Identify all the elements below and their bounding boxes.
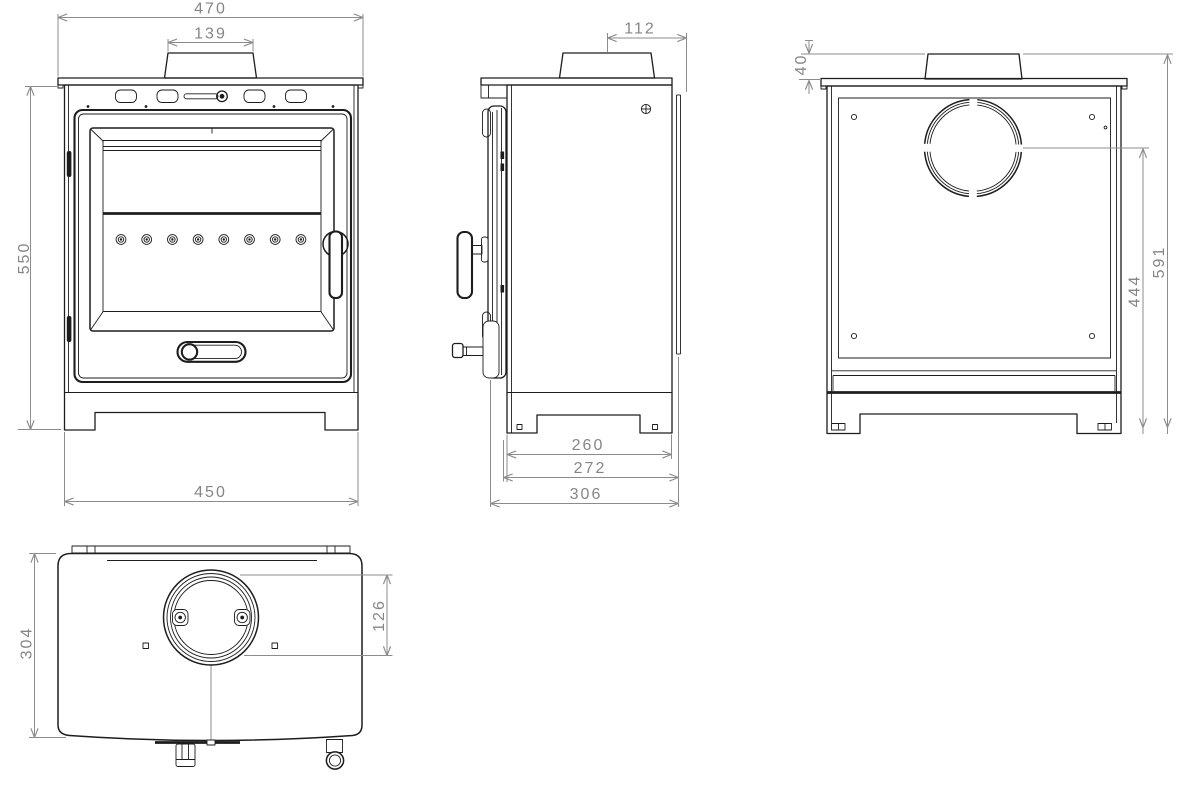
side-air-control: [453, 321, 500, 378]
front-ash-handle: [178, 342, 246, 362]
dim-label-side-flue-offset: 112: [624, 21, 656, 38]
dim-front-flue-width: 139: [168, 26, 253, 52]
dim-label-side-body-depth: 260: [572, 437, 605, 454]
back-foot-left: [832, 424, 846, 431]
dim-label-front-top-width: 470: [194, 1, 227, 18]
dim-label-side-overall-depth: 306: [570, 486, 603, 503]
top-flue-collar: [164, 570, 259, 665]
side-stove-outline: [481, 53, 681, 433]
side-body: [507, 85, 672, 433]
drawing-svg: 470 139 550 450: [0, 0, 1200, 791]
back-inner-panel: [839, 98, 1111, 358]
dim-label-back-flue-center-height: 444: [1127, 275, 1144, 308]
back-foot-right: [1098, 424, 1112, 431]
side-flue-collar: [560, 53, 655, 78]
dim-front-height: 550: [16, 87, 61, 430]
top-knob-control: [326, 740, 343, 770]
back-flue-collar: [925, 54, 1022, 79]
front-window-bolts: [116, 235, 306, 245]
dim-label-top-flue-opening: 126: [371, 599, 388, 632]
dim-back-overall-height: 591: [1023, 54, 1173, 434]
front-hinge-bottom: [67, 316, 72, 342]
top-view: 304 126: [19, 546, 393, 769]
top-slider-control: [176, 744, 195, 767]
front-air-slider: [184, 94, 218, 99]
top-plate: [58, 554, 362, 741]
front-door-handle: [323, 232, 348, 299]
front-view: 470 139 550 450: [16, 1, 363, 507]
dim-label-front-base-width: 450: [194, 484, 227, 501]
dim-label-back-collar-height: 40: [793, 54, 810, 76]
dim-label-top-depth: 304: [19, 627, 36, 660]
dim-top-depth: 304: [19, 554, 67, 738]
dim-side-flue-offset: 112: [608, 21, 687, 93]
top-collar-bolt-left: [173, 610, 189, 626]
back-view: 40 591 444: [793, 41, 1173, 435]
dim-label-back-overall-height: 591: [1151, 246, 1168, 279]
dim-front-base-width: 450: [65, 432, 359, 506]
back-flue-outlet: [925, 100, 1022, 197]
front-hinge-top: [67, 151, 72, 177]
stove-technical-drawing: 470 139 550 450: [0, 0, 1200, 791]
side-view: 112 260 272 306: [453, 21, 687, 508]
dim-side-overall-depth: 306: [491, 357, 679, 507]
dim-label-front-flue-width: 139: [194, 26, 227, 43]
top-front-controls: [155, 740, 344, 770]
back-body: [827, 86, 1121, 434]
front-air-vents: [87, 90, 335, 108]
back-stove-outline: [821, 54, 1127, 434]
top-stove-outline: [58, 546, 362, 743]
front-flue-collar: [165, 53, 257, 78]
side-screw: [641, 104, 650, 113]
top-collar-bolt-right: [235, 610, 251, 626]
dim-label-side-door-depth: 272: [574, 460, 607, 477]
side-hinge-top: [483, 109, 491, 137]
dim-top-flue-opening: 126: [240, 575, 393, 656]
side-heat-shield: [677, 95, 681, 354]
side-door-handle: [458, 232, 489, 298]
front-window-frame: [90, 128, 334, 331]
dim-label-front-height: 550: [16, 242, 33, 275]
